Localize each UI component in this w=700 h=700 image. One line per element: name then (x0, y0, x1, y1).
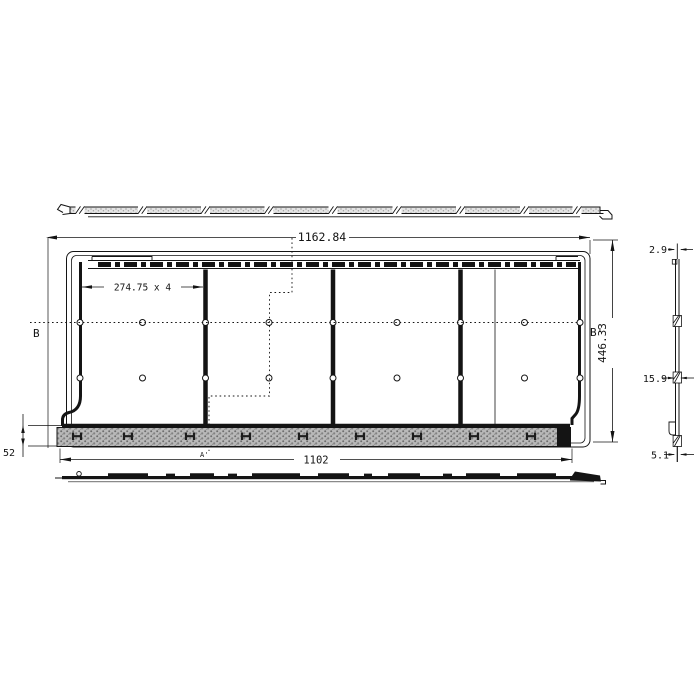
section-label-right: B' (590, 326, 603, 339)
dim-profile-bottom-thickness: 5.1 (651, 451, 694, 462)
dim-bottom-width-text: 1102 (303, 455, 328, 467)
bottom-profile-end-wedge (570, 472, 601, 482)
dim-profile-mid-thickness: 15.9 (643, 374, 694, 385)
side-profile-bottom-pocket (669, 422, 676, 435)
dim-base-height: 52 (3, 414, 62, 459)
base-strip-end-cap (557, 428, 571, 447)
panel-dividers (206, 270, 461, 426)
base-strip (57, 426, 571, 447)
dim-overall-width-text: 1162.84 (298, 230, 347, 244)
mounting-holes (77, 320, 583, 382)
dim-bottom-width: 1102 (60, 449, 572, 467)
section-label-bottom: A' (200, 451, 208, 459)
outer-outline (67, 252, 591, 448)
side-profile-joint-marks (673, 316, 681, 447)
section-line-aa (209, 238, 292, 451)
dim-panel-pitch-text: 274.75 x 4 (114, 283, 171, 294)
side-profile-view: 2.9 15.9 5.1 (643, 244, 694, 463)
frame-top-rail (88, 257, 580, 269)
bottom-profile-view (55, 472, 606, 485)
dim-base-height-text: 52 (3, 448, 15, 459)
dim-profile-top-thickness: 2.9 (649, 245, 693, 256)
dim-profile-bottom-text: 5.1 (651, 451, 669, 462)
frame-right (572, 262, 580, 425)
top-profile-left-hook (58, 205, 71, 215)
top-profile-view (58, 205, 613, 220)
section-label-left: B (33, 327, 40, 340)
side-profile-top-clip (672, 260, 677, 265)
technical-drawing: 1162.84 274.75 x 4 446.33 (0, 0, 700, 700)
top-profile-right-hook (600, 211, 613, 220)
dim-panel-pitch: 274.75 x 4 (82, 283, 203, 294)
bottom-profile-roller (77, 472, 82, 477)
dim-profile-mid-text: 15.9 (643, 374, 667, 385)
dim-overall-height: 446.33 (593, 240, 618, 442)
front-view (30, 238, 590, 451)
dim-profile-top-text: 2.9 (649, 245, 667, 256)
bottom-profile-band (62, 476, 597, 479)
bottom-profile-hardware (108, 473, 556, 476)
drawing-canvas: 1162.84 274.75 x 4 446.33 (0, 0, 700, 700)
